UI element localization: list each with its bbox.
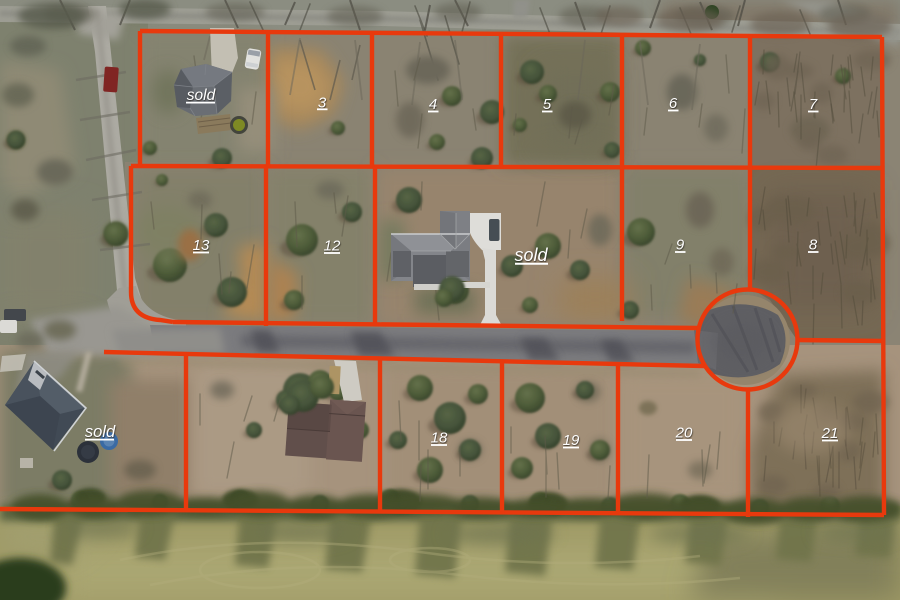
svg-text:8: 8 bbox=[809, 237, 818, 254]
svg-text:sold: sold bbox=[187, 87, 217, 104]
svg-text:21: 21 bbox=[821, 425, 839, 442]
svg-text:12: 12 bbox=[324, 238, 341, 255]
svg-text:13: 13 bbox=[193, 237, 210, 254]
svg-text:sold: sold bbox=[85, 423, 116, 441]
svg-text:7: 7 bbox=[809, 96, 818, 113]
svg-text:9: 9 bbox=[676, 237, 685, 254]
svg-text:4: 4 bbox=[429, 96, 437, 113]
svg-text:20: 20 bbox=[675, 425, 693, 442]
svg-text:sold: sold bbox=[514, 245, 548, 265]
svg-text:5: 5 bbox=[543, 96, 552, 113]
svg-text:18: 18 bbox=[431, 430, 448, 447]
svg-text:19: 19 bbox=[563, 432, 580, 449]
svg-text:6: 6 bbox=[669, 95, 678, 112]
